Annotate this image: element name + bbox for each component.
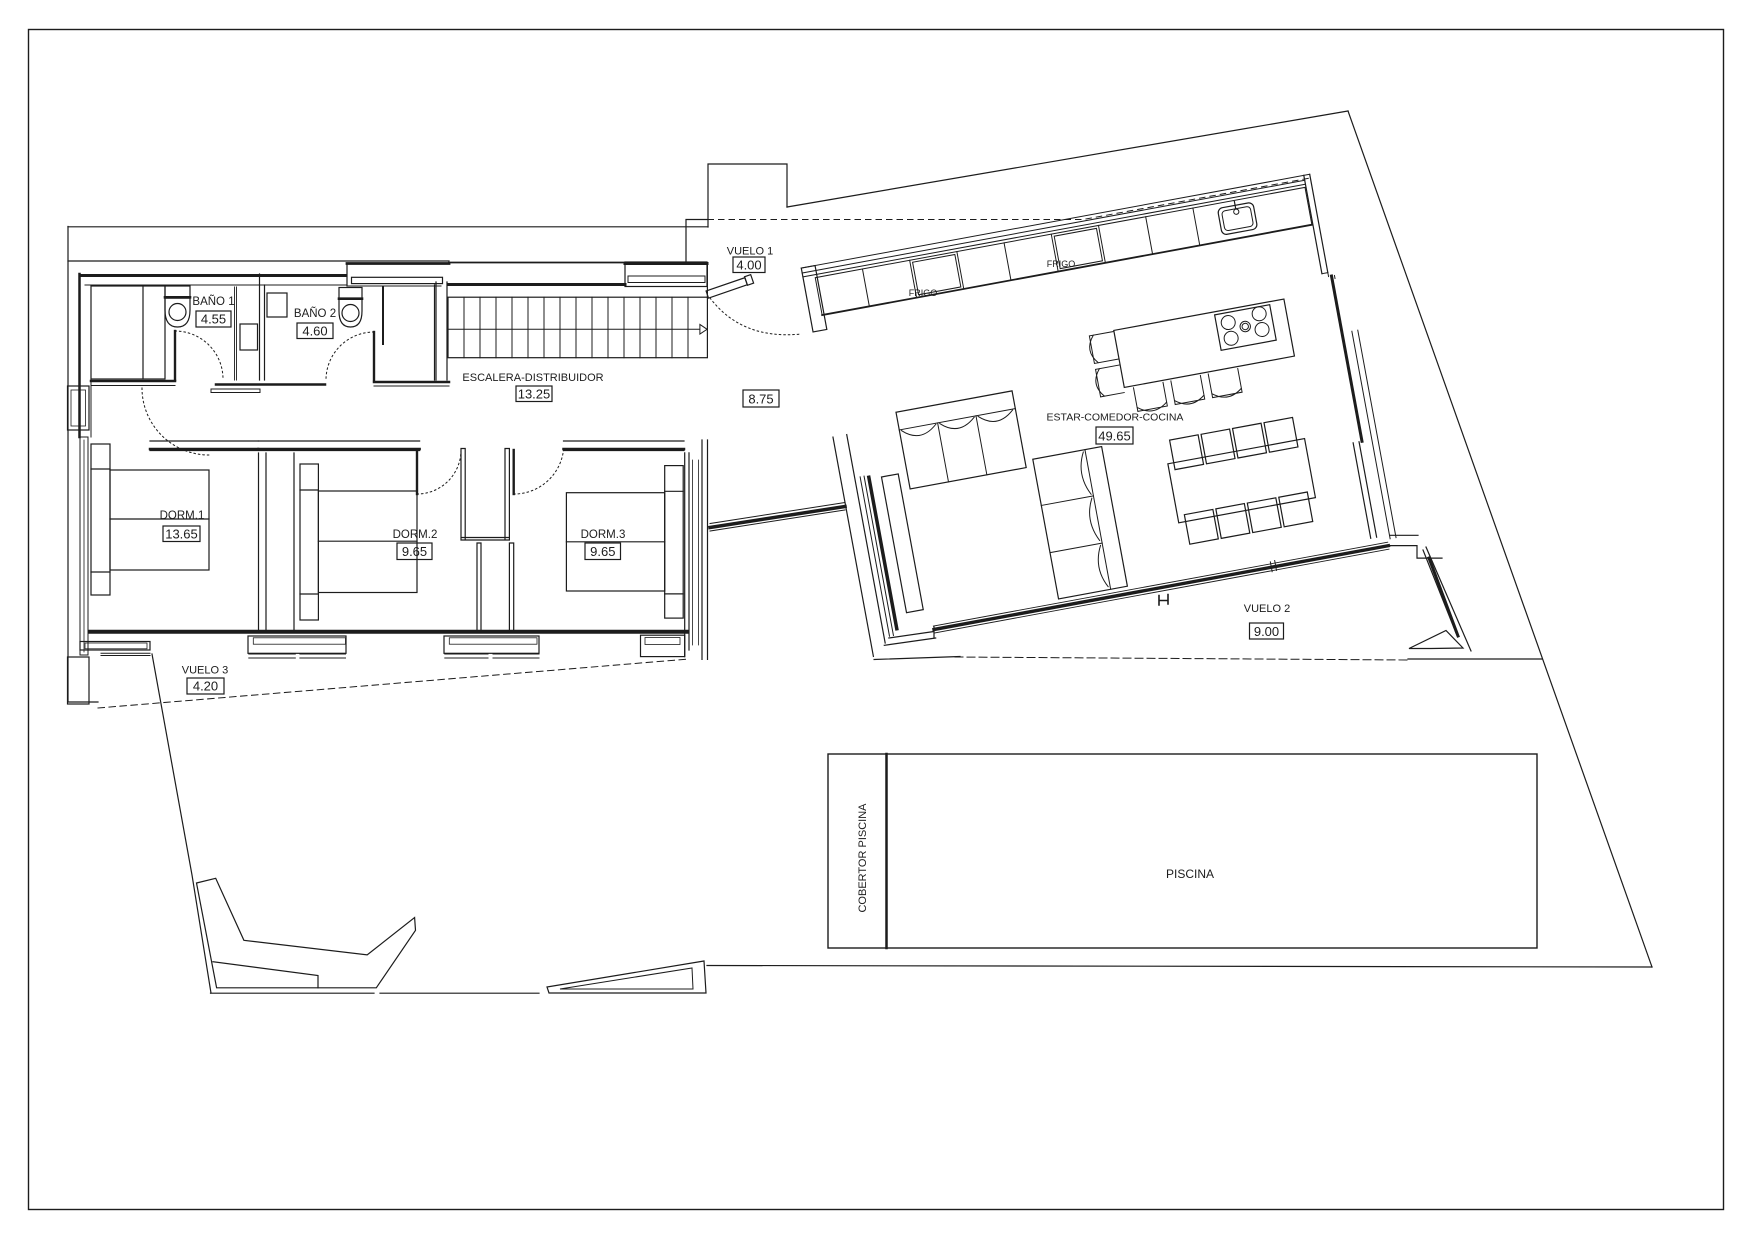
svg-text:PISCINA: PISCINA — [1166, 867, 1214, 881]
svg-text:13.65: 13.65 — [165, 527, 198, 542]
svg-text:8.75: 8.75 — [748, 392, 773, 407]
svg-text:DORM.1: DORM.1 — [160, 510, 205, 522]
svg-text:VUELO 1: VUELO 1 — [727, 246, 773, 258]
svg-text:13.25: 13.25 — [518, 387, 551, 402]
svg-text:COBERTOR PISCINA: COBERTOR PISCINA — [857, 803, 869, 913]
svg-text:9.65: 9.65 — [402, 544, 427, 559]
svg-text:4.55: 4.55 — [201, 312, 226, 327]
svg-text:BAÑO 1: BAÑO 1 — [192, 295, 234, 308]
svg-text:9.65: 9.65 — [590, 544, 615, 559]
svg-text:ESCALERA-DISTRIBUIDOR: ESCALERA-DISTRIBUIDOR — [462, 372, 603, 384]
svg-text:DORM.3: DORM.3 — [581, 529, 626, 541]
svg-text:BAÑO 2: BAÑO 2 — [294, 307, 336, 320]
svg-text:4.00: 4.00 — [736, 258, 761, 273]
svg-text:4.60: 4.60 — [302, 324, 327, 339]
svg-text:49.65: 49.65 — [1098, 429, 1131, 444]
svg-text:ESTAR-COMEDOR-COCINA: ESTAR-COMEDOR-COCINA — [1047, 412, 1184, 424]
svg-text:VUELO 2: VUELO 2 — [1244, 603, 1290, 615]
svg-text:DORM.2: DORM.2 — [393, 529, 438, 541]
svg-text:FRIGO: FRIGO — [909, 288, 938, 298]
svg-text:9.00: 9.00 — [1254, 624, 1279, 639]
svg-text:4.20: 4.20 — [193, 679, 218, 694]
svg-text:FRIGO: FRIGO — [1047, 259, 1076, 269]
svg-text:VUELO 3: VUELO 3 — [182, 665, 228, 677]
